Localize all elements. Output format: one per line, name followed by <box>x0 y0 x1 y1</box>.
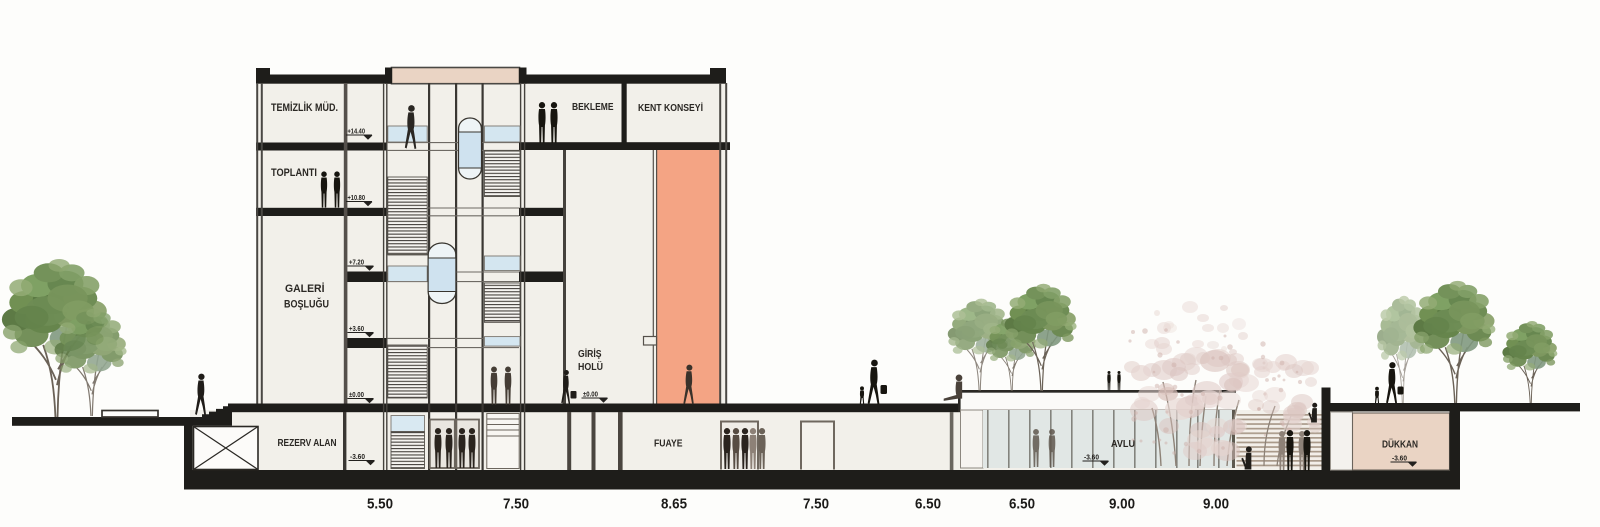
svg-text:AVLU: AVLU <box>1111 439 1135 450</box>
svg-text:FUAYE: FUAYE <box>654 439 683 450</box>
svg-text:TEMİZLİK MÜD.: TEMİZLİK MÜD. <box>271 101 338 114</box>
svg-text:TOPLANTI: TOPLANTI <box>271 167 317 179</box>
svg-text:8.65: 8.65 <box>661 496 687 513</box>
svg-text:5.50: 5.50 <box>367 496 393 513</box>
svg-text:GALERİ: GALERİ <box>285 282 325 295</box>
svg-text:7.50: 7.50 <box>803 496 829 513</box>
svg-text:DÜKKAN: DÜKKAN <box>1382 438 1418 451</box>
svg-text:7.50: 7.50 <box>503 496 529 513</box>
svg-text:REZERV ALAN: REZERV ALAN <box>278 438 337 449</box>
svg-text:BOŞLUĞU: BOŞLUĞU <box>284 298 329 311</box>
svg-text:BEKLEME: BEKLEME <box>572 102 614 113</box>
svg-text:6.50: 6.50 <box>915 496 941 513</box>
svg-text:9.00: 9.00 <box>1203 496 1229 513</box>
svg-text:6.50: 6.50 <box>1009 496 1035 513</box>
svg-text:GİRİŞ: GİRİŞ <box>578 347 602 360</box>
svg-text:HOLÜ: HOLÜ <box>578 360 603 373</box>
svg-text:9.00: 9.00 <box>1109 496 1135 513</box>
svg-text:KENT KONSEYİ: KENT KONSEYİ <box>638 101 703 114</box>
